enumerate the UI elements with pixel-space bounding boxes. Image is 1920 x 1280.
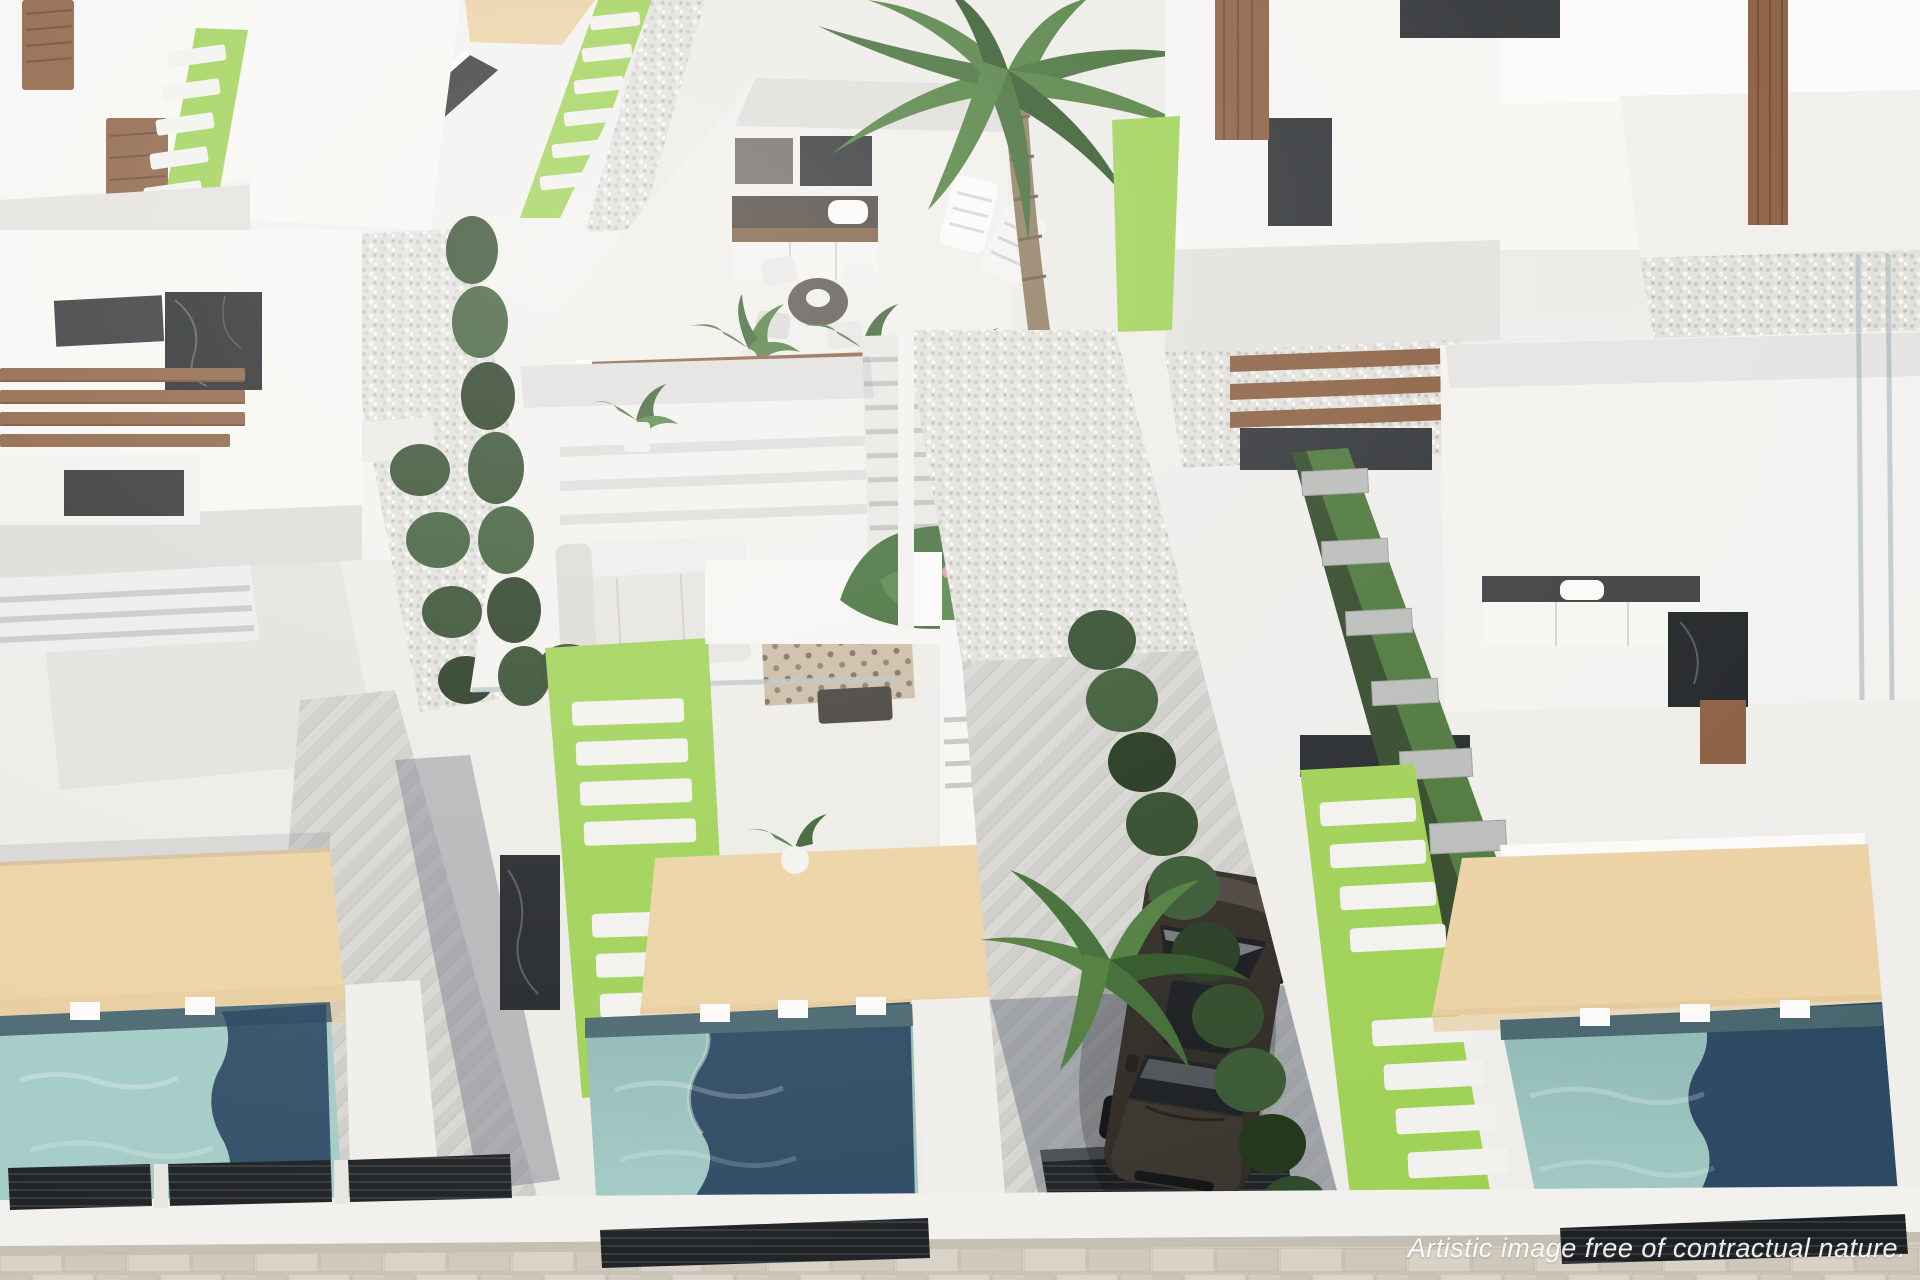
- render-canvas: [0, 0, 1920, 1280]
- aerial-villa-render: Artistic image free of contractual natur…: [0, 0, 1920, 1280]
- lighting-overlays: [0, 0, 1920, 1280]
